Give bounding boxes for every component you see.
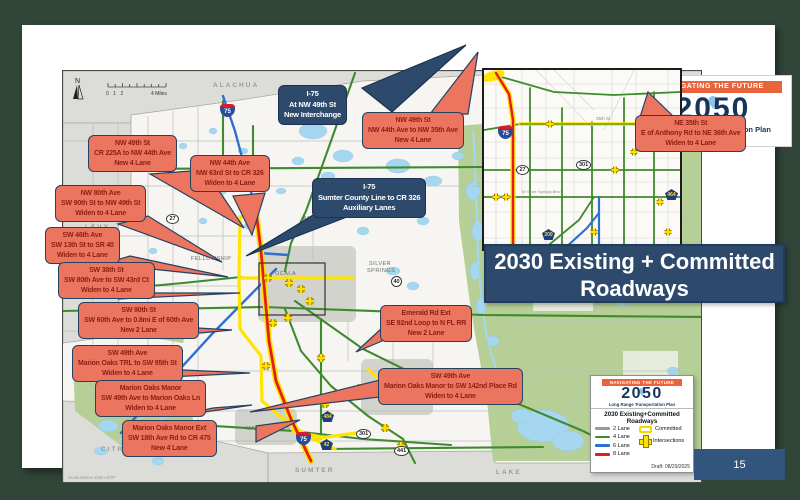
- legend-8lane: 8 Lane: [595, 451, 639, 457]
- callout-marion-oaks-manor-ext: Marion Oaks Manor ExtSW 18th Ave Rd to C…: [122, 420, 217, 457]
- map-attribution: Ocala Marion 2050 LRTP: [68, 475, 115, 480]
- callout-nw49th-cr225a: NW 49th StCR 225A to NW 44th AveNew 4 La…: [88, 135, 177, 172]
- callout-sw90th-st: SW 90th StSW 60th Ave to 0.8mi E of 60th…: [78, 302, 199, 339]
- svg-text:35th St: 35th St: [596, 116, 611, 121]
- intersection-icon: [639, 435, 650, 446]
- 2lane-swatch: [595, 427, 610, 430]
- sr40-shield: 40: [391, 276, 402, 287]
- 8lane-swatch: [595, 453, 610, 456]
- callout-emerald-rd-ext: Emerald Rd ExtSE 92nd Loop to N FL RRNew…: [380, 305, 472, 342]
- legend-4lane: 4 Lane: [595, 434, 639, 440]
- callout-i75-interchange: I-75At NW 49th StNew Interchange: [278, 85, 347, 125]
- map-legend: NAVIGATING THE FUTURE 2050 Long Range Tr…: [590, 375, 694, 473]
- committed-swatch: [639, 426, 652, 433]
- callout-sw49th-ave-south: SW 49th AveMarion Oaks Manor to SW 142nd…: [378, 368, 523, 405]
- callout-sw46th-ave: SW 46th AveSW 13th St to SR 40Widen to 4…: [45, 227, 120, 264]
- svg-text:W Silver Springs Blvd: W Silver Springs Blvd: [522, 189, 560, 194]
- svg-text:2: 2: [121, 91, 124, 97]
- ocala-inset-map: 35th St W Silver Springs Blvd 75 27 301 …: [482, 68, 682, 251]
- legend-6lane: 6 Lane: [595, 443, 639, 449]
- slide-title-line1: 2030 Existing + Committed: [486, 249, 783, 276]
- svg-text:N: N: [75, 78, 80, 85]
- 4lane-swatch: [595, 436, 610, 439]
- legend-logo-year: 2050: [591, 386, 693, 402]
- us27-shield: 27: [166, 214, 179, 224]
- callout-sw49th-ave-north: SW 49th AveMarion Oaks TRL to SW 95th St…: [72, 345, 183, 382]
- page-number-bar: 15: [694, 449, 785, 480]
- callout-nw44th-ave: NW 44th AveNW 63rd St to CR 326Widen to …: [190, 155, 270, 192]
- svg-text:LAKE: LAKE: [496, 469, 522, 476]
- legend-2lane: 2 Lane: [595, 426, 639, 432]
- svg-text:SILVER: SILVER: [369, 261, 391, 267]
- svg-text:OCALA: OCALA: [275, 271, 296, 277]
- slide-title-line2: Roadways: [486, 276, 783, 303]
- page-number: 15: [733, 459, 745, 471]
- us27-shield: 27: [516, 165, 529, 175]
- legend-logo-subtitle: Long Range Transportation Plan: [591, 402, 693, 409]
- callout-nw80th-ave: NW 80th AveSW 90th St to NW 49th StWiden…: [55, 185, 146, 222]
- draft-date: Draft: 08/29/2025: [651, 464, 690, 470]
- svg-text:SUMTER: SUMTER: [295, 467, 334, 474]
- 6lane-swatch: [595, 444, 610, 447]
- callout-marion-oaks-manor: Marion Oaks ManorSW 49th Ave to Marion O…: [95, 380, 206, 417]
- svg-text:MARION OAKS: MARION OAKS: [246, 426, 290, 432]
- slide-title: 2030 Existing + Committed Roadways: [484, 244, 785, 303]
- legend-entries: 2 Lane 4 Lane 6 Lane 8 Lane Committed In…: [591, 426, 693, 458]
- svg-text:FELLOWSHIP: FELLOWSHIP: [191, 256, 231, 262]
- callout-sw38th-st: SW 38th StSW 80th Ave to SW 43rd CtWiden…: [58, 262, 155, 299]
- svg-text:4 Miles: 4 Miles: [151, 91, 167, 97]
- callout-ne35th-st: NE 35th StE of Anthony Rd to NE 36th Ave…: [635, 115, 746, 152]
- legend-title: 2030 Existing+Committed Roadways: [591, 411, 693, 425]
- callout-i75-aux-lanes: I-75Sumter County Line to CR 326Auxiliar…: [312, 178, 426, 218]
- svg-text:1: 1: [113, 91, 116, 97]
- legend-intersections: Intersections: [639, 435, 684, 446]
- presentation-stage: ALACHUA LEVY CITRUS SUMTER LAKE OCALA AN…: [0, 0, 800, 500]
- callout-nw49th-new4lane: NW 49th StNW 44th Ave to NW 35th AveNew …: [362, 112, 464, 149]
- svg-text:ALACHUA: ALACHUA: [213, 82, 259, 89]
- svg-text:0: 0: [106, 91, 109, 97]
- legend-committed: Committed: [639, 426, 684, 433]
- svg-text:SPRINGS: SPRINGS: [367, 268, 395, 274]
